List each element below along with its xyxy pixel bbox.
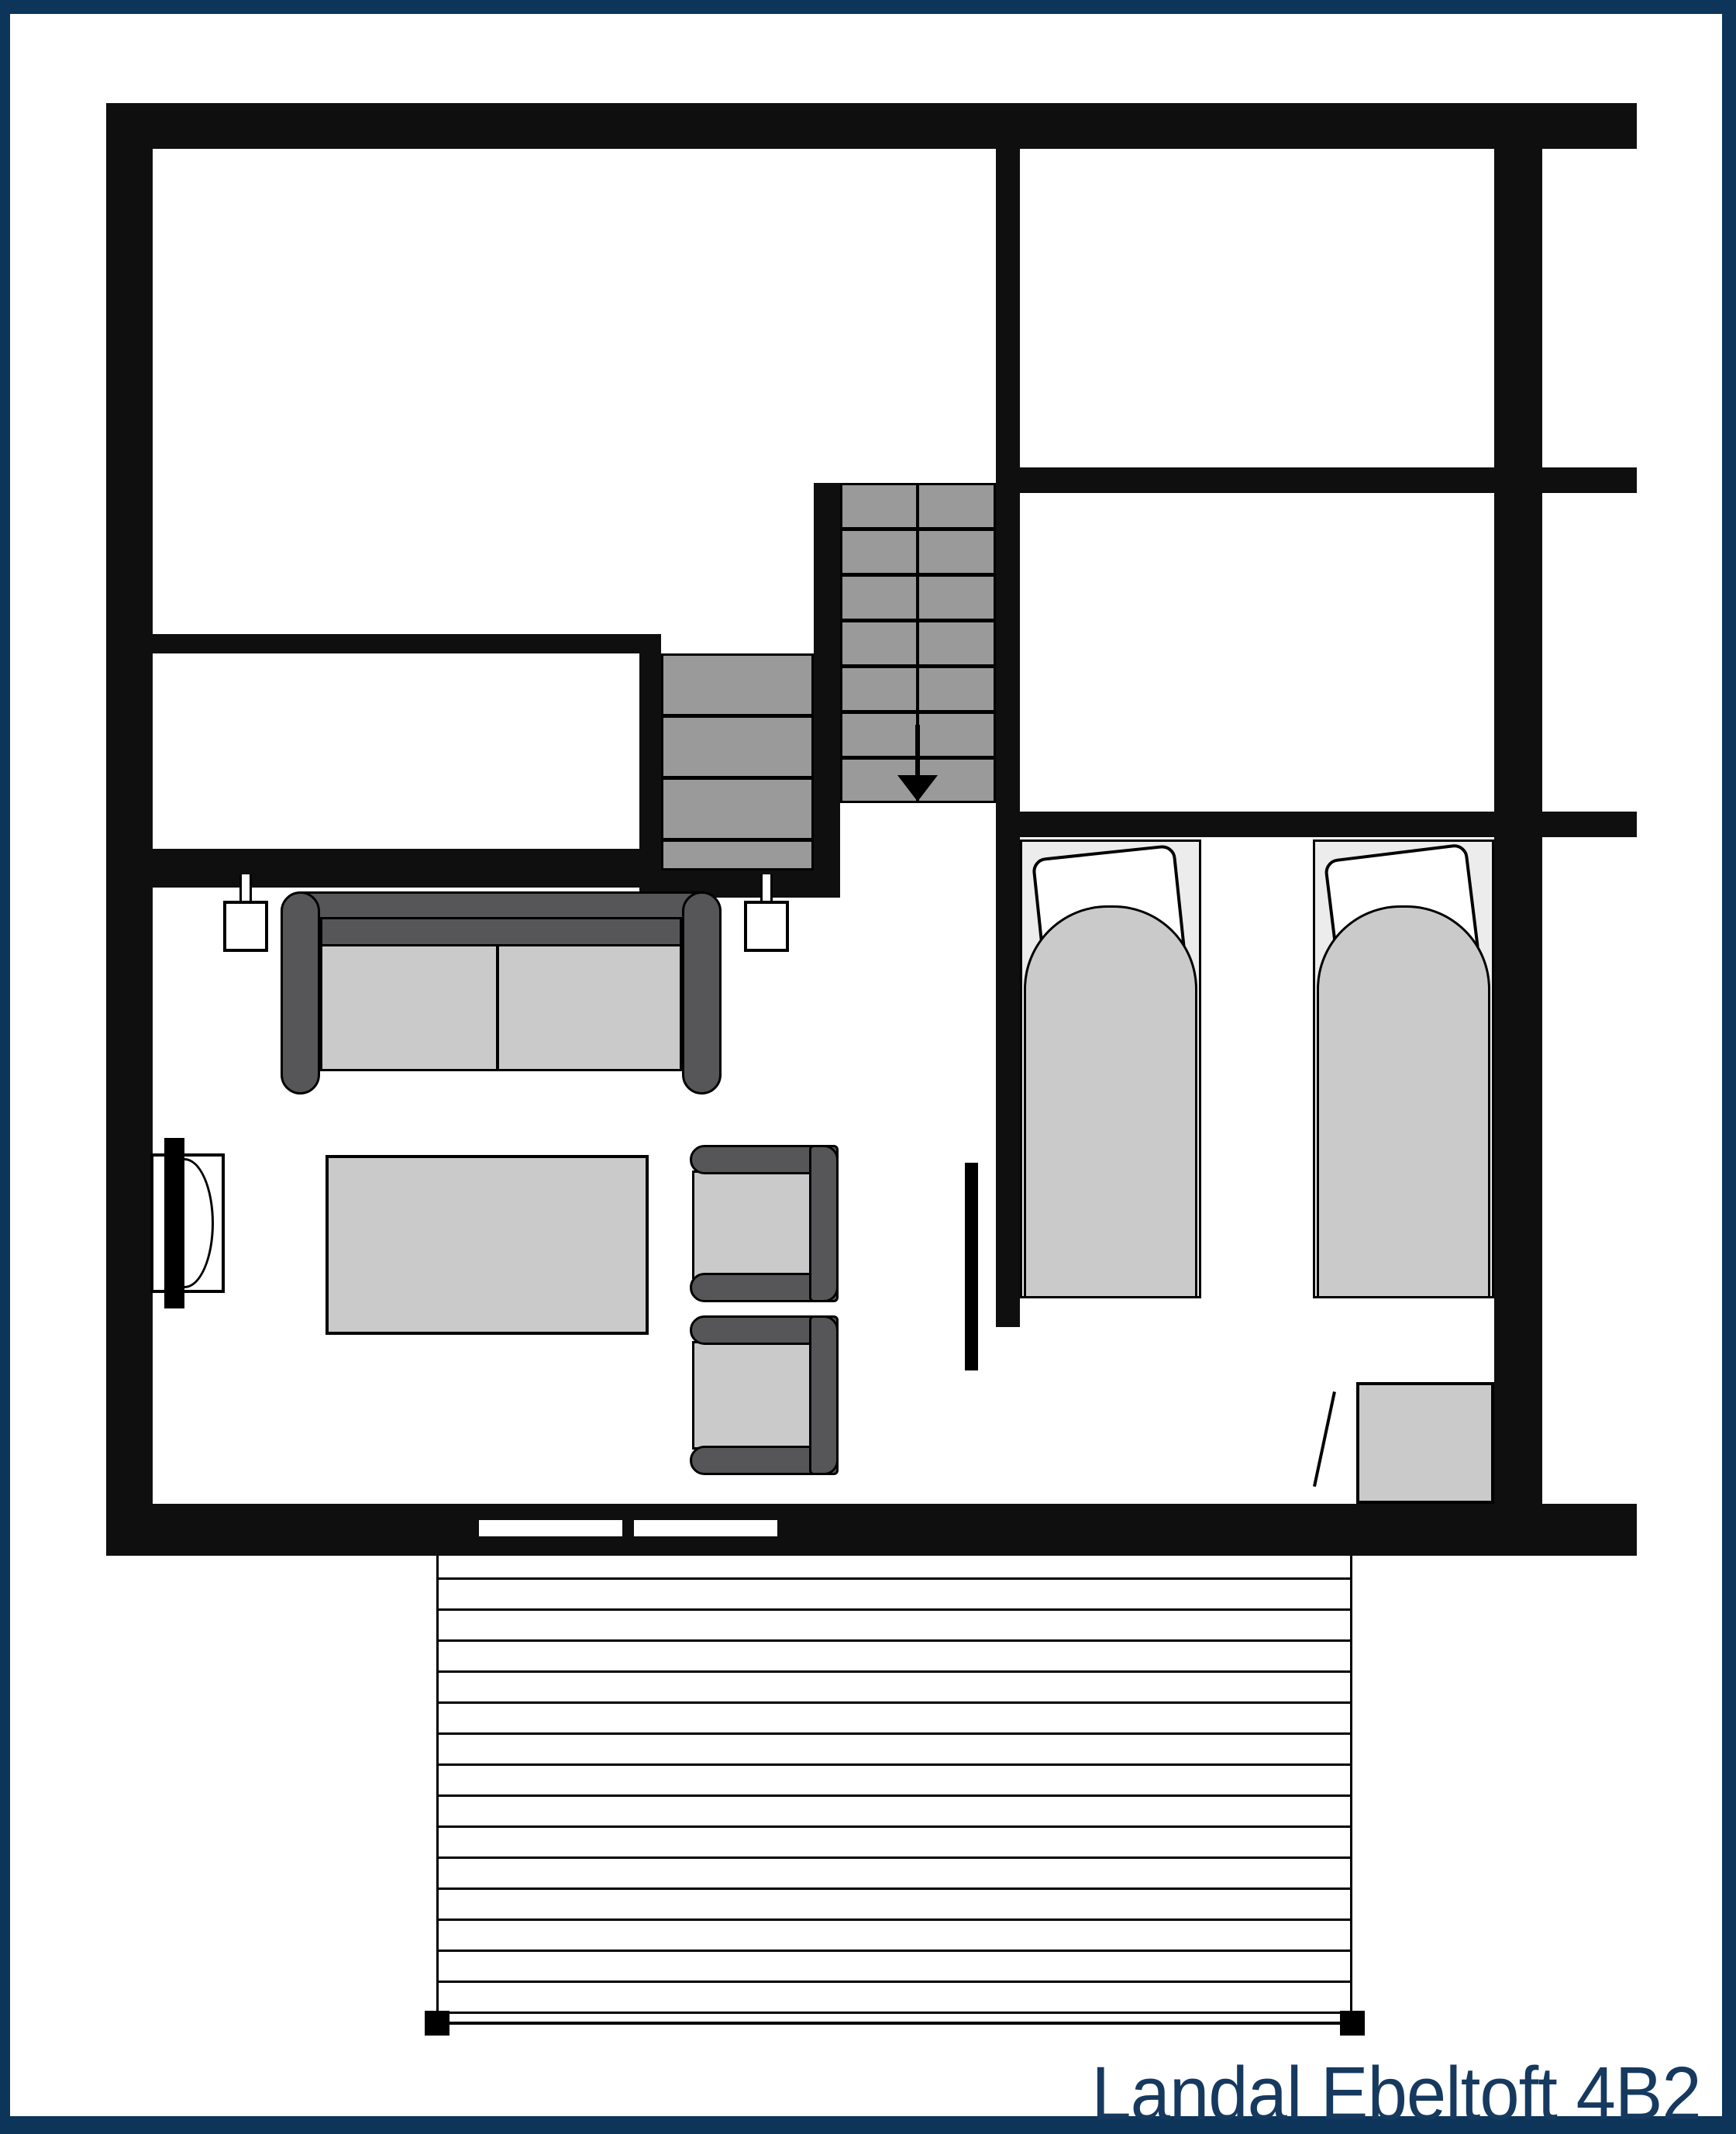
wall-stair-left xyxy=(639,634,661,898)
armchair-1-cushion xyxy=(692,1170,812,1279)
deck-corner-marker-left xyxy=(425,2011,449,2036)
wall-lamp-left-stem xyxy=(239,874,252,902)
stairs-down-arrow-shaft xyxy=(915,725,920,779)
sofa-back-cushion xyxy=(320,917,682,946)
wall-small-room-top xyxy=(106,634,661,653)
frame-right xyxy=(1722,0,1736,2134)
coffee-table xyxy=(325,1155,649,1335)
bed-2-duvet xyxy=(1317,905,1490,1296)
frame-top xyxy=(0,0,1736,14)
wall-exterior-top xyxy=(106,103,1637,149)
stairs-down-arrow-icon xyxy=(897,775,938,802)
floor-plan-canvas: Landal Ebeltoft 4B2 xyxy=(0,0,1736,2134)
armchair-2-backrest xyxy=(809,1315,839,1475)
sofa-seat-cushions xyxy=(320,944,682,1071)
wall-right-room-divider-upper xyxy=(1020,467,1637,493)
window-slot-right xyxy=(634,1520,777,1536)
bedroom-door-leaf xyxy=(1313,1391,1336,1487)
armchair-1-backrest xyxy=(809,1145,839,1302)
wall-lamp-right xyxy=(744,901,789,952)
sofa-arm-left xyxy=(281,891,320,1095)
frame-left xyxy=(0,0,10,2134)
wall-lamp-right-stem xyxy=(760,874,773,902)
bed-1-duvet xyxy=(1024,905,1197,1296)
window-slot-left xyxy=(479,1520,622,1536)
wall-exterior-left xyxy=(106,103,153,1556)
wall-right-room-divider-lower xyxy=(1020,812,1637,837)
deck-corner-marker-right xyxy=(1340,2011,1365,2036)
wall-stair-middle xyxy=(814,483,840,898)
sofa-arm-right xyxy=(682,891,722,1095)
radiator xyxy=(965,1163,978,1370)
wall-lamp-left xyxy=(223,901,268,952)
staircase-lower-flight xyxy=(661,653,814,870)
wall-small-room-bottom xyxy=(106,849,661,888)
wall-center-vertical xyxy=(996,149,1020,1327)
plan-title: Landal Ebeltoft 4B2 xyxy=(1092,2050,1701,2134)
bedroom-cabinet xyxy=(1356,1382,1494,1504)
tv-screen-bar xyxy=(164,1138,184,1308)
armchair-2-cushion xyxy=(692,1341,812,1450)
sofa-seat-divider xyxy=(496,946,499,1069)
deck-terrace xyxy=(436,1556,1352,2025)
wall-exterior-bottom xyxy=(106,1504,1637,1556)
